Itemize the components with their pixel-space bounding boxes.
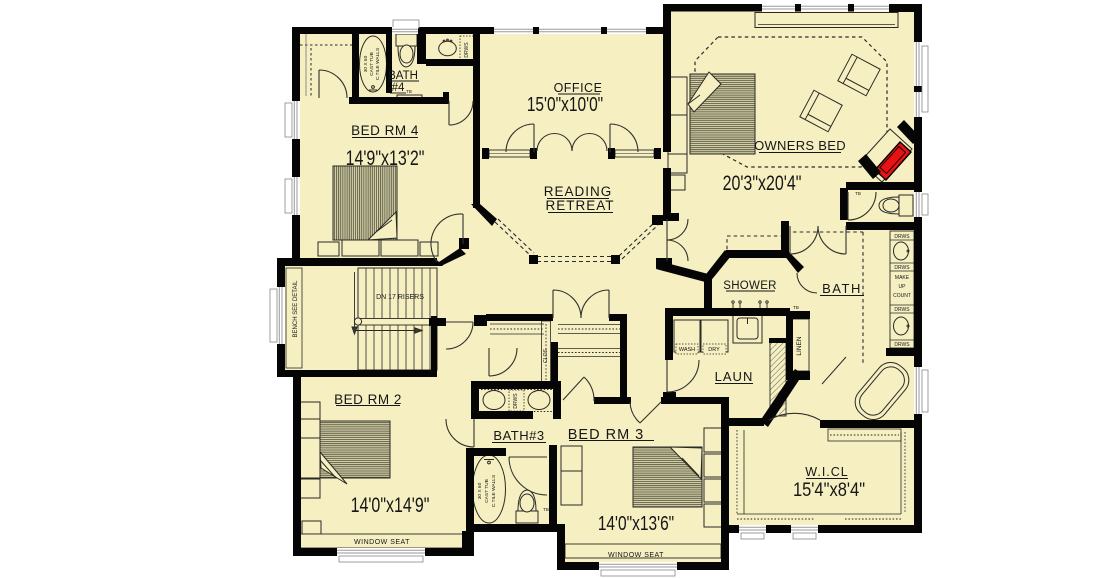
svg-text:CAST TUB: CAST TUB xyxy=(484,479,490,503)
svg-text:15'0"x10'0": 15'0"x10'0" xyxy=(527,93,603,115)
svg-text:WINDOW SEAT: WINDOW SEAT xyxy=(608,552,664,559)
svg-text:TB: TB xyxy=(406,89,412,94)
svg-text:OWNERS BED: OWNERS BED xyxy=(754,138,846,153)
svg-text:LINEN: LINEN xyxy=(796,336,803,355)
svg-text:MAKE: MAKE xyxy=(895,275,910,281)
svg-text:READING: READING xyxy=(544,184,613,199)
svg-text:DRWS: DRWS xyxy=(894,307,910,313)
svg-text:BATH#3: BATH#3 xyxy=(493,428,544,443)
svg-text:BENCH SEE DETAIL: BENCH SEE DETAIL xyxy=(293,280,299,338)
svg-text:CLOS: CLOS xyxy=(543,349,549,363)
svg-text:UP: UP xyxy=(899,284,907,290)
svg-text:20'3"x20'4": 20'3"x20'4" xyxy=(723,171,802,195)
svg-text:WINDOW SEAT: WINDOW SEAT xyxy=(354,539,410,546)
svg-text:CAST TUB: CAST TUB xyxy=(369,52,375,76)
svg-text:WASH: WASH xyxy=(679,347,695,353)
svg-text:LAUN: LAUN xyxy=(715,369,754,384)
svg-text:COUNT: COUNT xyxy=(893,293,911,299)
svg-text:DN 17 RISERS: DN 17 RISERS xyxy=(376,294,424,301)
svg-text:BATH: BATH xyxy=(822,281,862,296)
svg-text:DRWS: DRWS xyxy=(513,393,519,409)
svg-text:14'0"x14'9": 14'0"x14'9" xyxy=(351,493,430,517)
svg-text:30 X 60: 30 X 60 xyxy=(363,55,369,72)
svg-text:DRWS: DRWS xyxy=(894,342,910,348)
svg-text:C.TILE WALLS: C.TILE WALLS xyxy=(375,48,381,80)
svg-text:15'4"x8'4": 15'4"x8'4" xyxy=(793,479,865,501)
svg-text:30 X 60: 30 X 60 xyxy=(477,482,483,499)
svg-text:SHOWER: SHOWER xyxy=(723,280,777,292)
svg-text:TB: TB xyxy=(793,305,799,310)
svg-text:DRWS: DRWS xyxy=(894,265,910,271)
svg-text:BATH: BATH xyxy=(388,70,418,82)
svg-text:BED RM 2: BED RM 2 xyxy=(334,392,402,407)
svg-text:RETREAT: RETREAT xyxy=(545,198,614,213)
svg-text:#4: #4 xyxy=(392,82,405,94)
svg-text:TB: TB xyxy=(855,191,861,196)
svg-text:DRY: DRY xyxy=(708,347,720,353)
svg-text:BED RM 4: BED RM 4 xyxy=(351,123,419,138)
svg-text:DRWS: DRWS xyxy=(464,42,470,58)
svg-text:14'0"x13'6": 14'0"x13'6" xyxy=(598,512,674,534)
svg-text:C.TILE WALLS: C.TILE WALLS xyxy=(491,475,497,507)
svg-text:TB: TB xyxy=(543,507,549,512)
svg-text:14'9"x13'2": 14'9"x13'2" xyxy=(346,146,425,170)
svg-text:DRWS: DRWS xyxy=(894,234,910,240)
svg-text:W.I.CL: W.I.CL xyxy=(805,465,849,479)
